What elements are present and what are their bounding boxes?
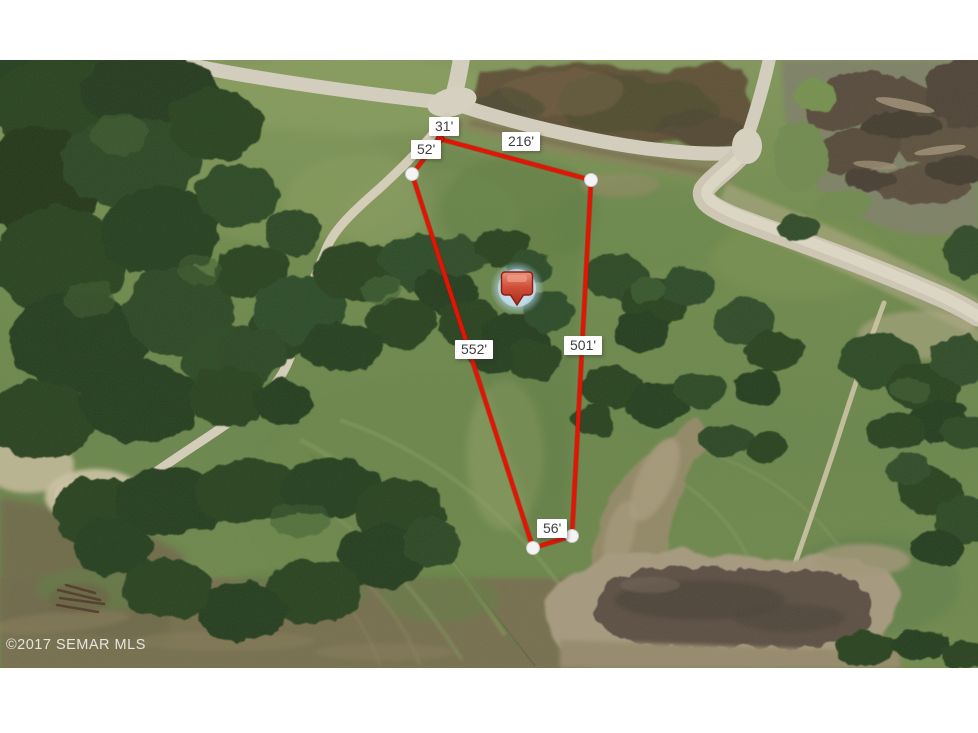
- listing-photo-aerial-map: 31' 52' 216' 552' 501' 56' ©2017 SEMAR M…: [0, 0, 978, 733]
- mls-watermark: ©2017 SEMAR MLS: [6, 637, 146, 653]
- measurement-label-501: 501': [564, 336, 602, 355]
- measurement-label-552: 552': [455, 340, 493, 359]
- measurement-label-52: 52': [411, 140, 441, 159]
- location-pin-icon: [490, 261, 544, 315]
- measurement-label-31: 31': [429, 117, 459, 136]
- measurement-label-216: 216': [502, 132, 540, 151]
- top-matte-band: [0, 0, 978, 60]
- satellite-photo: [0, 0, 978, 733]
- bottom-matte-band: [0, 668, 978, 733]
- measurement-label-56: 56': [537, 519, 567, 538]
